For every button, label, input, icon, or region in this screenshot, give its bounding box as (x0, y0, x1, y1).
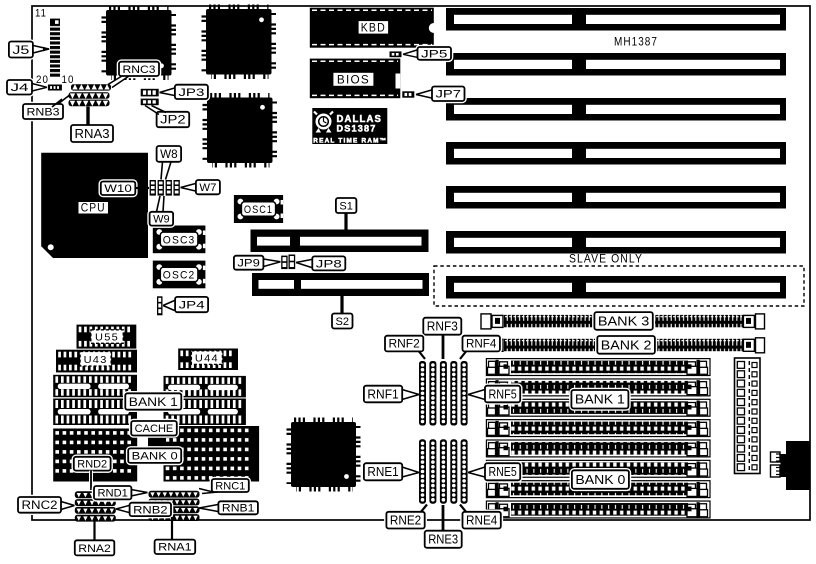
svg-text:RNF4: RNF4 (466, 338, 497, 351)
svg-text:RNB3: RNB3 (27, 106, 60, 118)
svg-text:RNE4: RNE4 (466, 514, 497, 528)
svg-text:DS1387: DS1387 (337, 124, 377, 135)
svg-text:U43: U43 (84, 354, 108, 366)
svg-text:REAL TIME RAM™: REAL TIME RAM™ (313, 137, 387, 144)
svg-text:JP3: JP3 (178, 87, 204, 99)
svg-text:RND2: RND2 (77, 459, 107, 471)
svg-text:JP8: JP8 (316, 258, 342, 270)
svg-text:20: 20 (36, 74, 49, 86)
svg-text:S2: S2 (336, 316, 350, 328)
svg-text:RNE5: RNE5 (489, 465, 517, 479)
svg-text:RNE3: RNE3 (428, 533, 458, 547)
svg-text:J5: J5 (12, 43, 29, 57)
svg-text:RNF5: RNF5 (489, 387, 517, 401)
svg-text:BANK 0: BANK 0 (132, 451, 178, 463)
svg-text:BANK 1: BANK 1 (129, 395, 178, 409)
svg-text:W8: W8 (160, 147, 178, 161)
svg-text:RNA1: RNA1 (158, 542, 192, 554)
svg-text:RNF1: RNF1 (367, 387, 398, 401)
svg-text:RNC3: RNC3 (123, 64, 156, 76)
svg-text:W9: W9 (153, 214, 170, 226)
svg-text:RNA3: RNA3 (75, 127, 110, 141)
svg-text:MH1387: MH1387 (614, 37, 658, 49)
svg-text:RNF2: RNF2 (389, 338, 420, 351)
svg-text:S1: S1 (339, 200, 353, 212)
svg-text:U55: U55 (95, 331, 119, 343)
svg-text:RNC1: RNC1 (215, 480, 245, 492)
svg-text:RNF3: RNF3 (427, 320, 458, 334)
svg-text:JP4: JP4 (179, 300, 206, 312)
svg-text:JP5: JP5 (421, 48, 448, 60)
svg-text:BIOS: BIOS (337, 74, 370, 86)
svg-text:CPU: CPU (81, 203, 106, 215)
svg-text:RNE1: RNE1 (367, 465, 398, 479)
svg-text:OSC1: OSC1 (244, 204, 273, 216)
svg-text:BANK 0: BANK 0 (575, 473, 625, 487)
svg-text:RNB2: RNB2 (133, 504, 167, 516)
svg-text:BANK 3: BANK 3 (598, 314, 649, 328)
svg-text:JP2: JP2 (160, 115, 186, 127)
svg-text:11: 11 (35, 8, 47, 20)
svg-text:BANK 2: BANK 2 (601, 338, 652, 352)
svg-text:RNE2: RNE2 (390, 514, 421, 528)
svg-text:OSC3: OSC3 (163, 234, 196, 246)
svg-text:SLAVE ONLY: SLAVE ONLY (569, 254, 643, 266)
svg-text:RND1: RND1 (98, 488, 128, 500)
svg-text:10: 10 (62, 74, 75, 86)
svg-text:J4: J4 (11, 82, 29, 94)
svg-text:W7: W7 (199, 182, 216, 194)
svg-text:U44: U44 (195, 352, 219, 364)
svg-text:RNB1: RNB1 (222, 503, 255, 515)
svg-text:JP9: JP9 (237, 258, 260, 270)
svg-text:OSC2: OSC2 (163, 269, 196, 281)
svg-text:CACHE: CACHE (135, 423, 174, 435)
svg-text:RNC2: RNC2 (22, 499, 58, 512)
svg-text:RNA2: RNA2 (78, 543, 111, 555)
svg-text:BANK 1: BANK 1 (575, 393, 625, 407)
svg-text:KBD: KBD (361, 22, 386, 34)
svg-text:JP7: JP7 (436, 89, 462, 101)
svg-text:W10: W10 (104, 183, 132, 195)
